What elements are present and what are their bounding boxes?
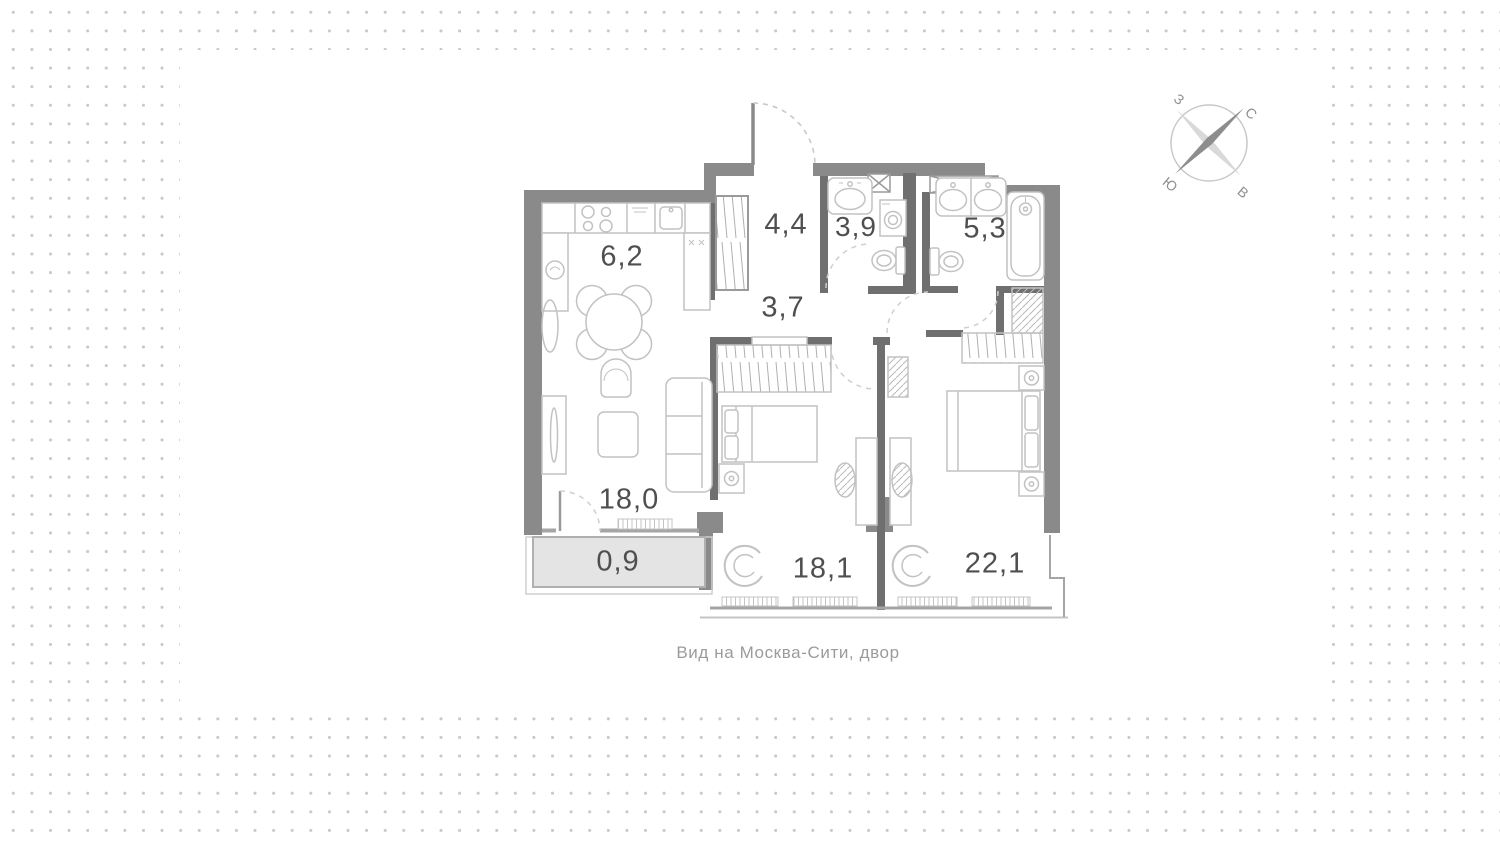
room-area-label-bedroom-1: 18,1 — [793, 553, 853, 586]
room-area-label-living-room: 18,0 — [599, 484, 659, 517]
room-area-label-bedroom-2: 22,1 — [965, 548, 1025, 581]
compass-north: С — [1242, 104, 1260, 123]
view-caption: Вид на Москва-Сити, двор — [676, 643, 899, 663]
room-area-label-bathroom-small: 3,9 — [835, 211, 877, 243]
compass-south: Ю — [1160, 173, 1181, 194]
compass-icon: З С Ю В — [1160, 90, 1261, 201]
room-area-label-bathroom-large: 5,3 — [963, 213, 1006, 246]
room-area-label-corridor: 3,7 — [761, 292, 804, 325]
compass-west: З — [1171, 90, 1188, 108]
floor-plan-drawing: З С Ю В — [0, 0, 1500, 842]
room-area-label-kitchen: 6,2 — [600, 241, 643, 274]
bedroom2-furniture — [888, 288, 1044, 586]
room-area-label-hallway: 4,4 — [764, 209, 807, 242]
room-area-label-balcony: 0,9 — [596, 546, 639, 579]
compass-east: В — [1234, 183, 1251, 201]
floor-plan-page: { "floor_plan": { "caption": "Вид на Мос… — [0, 0, 1500, 842]
bedroom1-furniture — [717, 337, 877, 586]
kitchen-furniture — [542, 203, 710, 397]
hall-closet — [716, 196, 748, 290]
